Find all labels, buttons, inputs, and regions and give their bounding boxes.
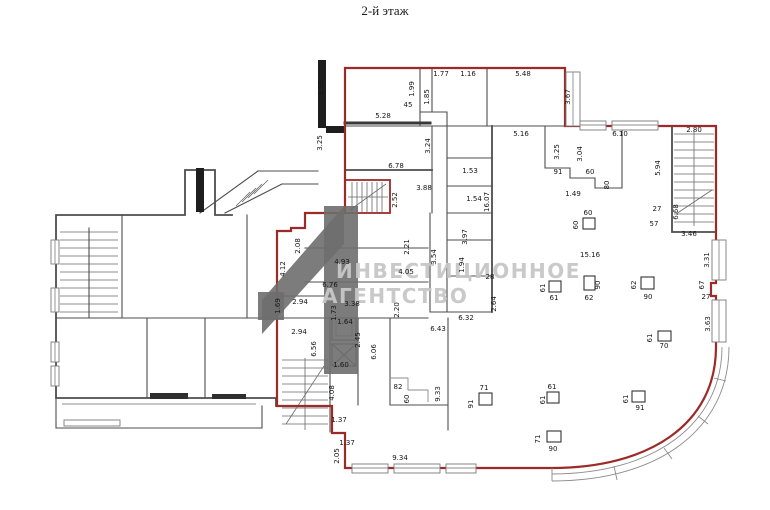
dimension-label: 82 xyxy=(394,383,403,391)
dimension-label: 3.04 xyxy=(576,146,584,162)
dimension-label: 4.08 xyxy=(328,385,336,401)
dimension-label: 90 xyxy=(644,293,653,301)
column xyxy=(641,277,654,289)
dimension-label: 90 xyxy=(594,281,602,290)
dimension-label: 91 xyxy=(467,400,475,409)
dimension-label: 4.93 xyxy=(334,258,350,266)
dimension-label: 5.94 xyxy=(654,160,662,176)
dimension-label: 27 xyxy=(702,293,711,301)
dimension-label: 57 xyxy=(650,220,659,228)
dimension-label: 1.53 xyxy=(462,167,478,175)
dimension-label: 1.64 xyxy=(337,318,353,326)
dimension-label: 2.64 xyxy=(490,296,498,312)
dimension-label: 2.94 xyxy=(292,298,308,306)
dimension-label: 6.10 xyxy=(612,130,628,138)
dimension-label: 3.25 xyxy=(553,144,561,160)
dimension-label: 1.99 xyxy=(408,81,416,97)
bottom-left-staircase xyxy=(282,358,328,430)
dimension-label: 91 xyxy=(636,404,645,412)
dimension-label: 6.43 xyxy=(430,325,446,333)
dimension-label: 62 xyxy=(585,294,594,302)
west-windows xyxy=(51,240,59,386)
dimension-label: 3.31 xyxy=(703,252,711,268)
column xyxy=(549,281,561,292)
dimension-label: 3.46 xyxy=(681,230,697,238)
left-staircase xyxy=(56,228,122,318)
dimension-label: 6.06 xyxy=(370,344,378,360)
dimension-label: 2.08 xyxy=(294,238,302,254)
column xyxy=(479,393,492,405)
dimension-label: 2.20 xyxy=(393,302,401,318)
column xyxy=(583,218,595,229)
dimension-label: 3.88 xyxy=(416,184,432,192)
dimension-label: 15.16 xyxy=(580,251,601,259)
dimension-label: 61 xyxy=(622,395,630,404)
dimension-label: 71 xyxy=(534,435,542,444)
dimension-label: 60 xyxy=(584,209,593,217)
dimension-label: 67 xyxy=(698,281,706,290)
dimension-label: 2.45 xyxy=(354,332,362,348)
dimension-label: 91 xyxy=(554,168,563,176)
dimension-label: 3.38 xyxy=(344,300,360,308)
dimension-label: 6.76 xyxy=(322,281,338,289)
dimension-label: 1.94 xyxy=(458,257,466,273)
dimension-label: 2.80 xyxy=(686,126,702,134)
dimension-label: 71 xyxy=(480,384,489,392)
floor-plan-page: 2-й этаж xyxy=(0,0,770,510)
floor-plan-canvas: ИНВЕСТИЦИОННОЕ АГЕНТСТВО 3.361.991.851.7… xyxy=(0,0,770,510)
dimension-label: 1.37 xyxy=(339,439,355,447)
dimension-label: 61 xyxy=(539,284,547,293)
dimension-label: 5.48 xyxy=(515,70,531,78)
dimension-label: 1.60 xyxy=(333,361,349,369)
dimension-label: 60 xyxy=(586,168,595,176)
column xyxy=(547,431,561,442)
dimension-label: 3.36 xyxy=(317,80,325,96)
dimension-label: 61 xyxy=(548,383,557,391)
dimension-label: 4.05 xyxy=(398,268,414,276)
dimension-label: 6.78 xyxy=(388,162,404,170)
dimension-label: 61 xyxy=(646,334,654,343)
dimension-label: 62 xyxy=(630,281,638,290)
column xyxy=(632,391,645,402)
right-staircase xyxy=(674,130,714,226)
dimension-label: 1.69 xyxy=(274,298,282,314)
dimension-label: 27 xyxy=(653,205,662,213)
column xyxy=(658,331,671,341)
annex-window xyxy=(64,420,120,426)
dimension-label: 2.52 xyxy=(391,192,399,208)
dimension-label: 61 xyxy=(550,294,559,302)
dimension-label: 61 xyxy=(539,396,547,405)
dimension-label: 2.94 xyxy=(291,328,307,336)
dimension-label: 2.05 xyxy=(333,448,341,464)
window-sill xyxy=(150,393,188,399)
dimension-label: 45 xyxy=(404,101,413,109)
dimension-label: 90 xyxy=(549,445,558,453)
dimension-label: 1.77 xyxy=(433,70,449,78)
dimension-label: 1.54 xyxy=(466,195,482,203)
dimension-label: 28 xyxy=(486,273,495,281)
dimension-label: 70 xyxy=(660,342,669,350)
dimension-label: 3.24 xyxy=(424,138,432,154)
dimension-label: 9.33 xyxy=(434,386,442,402)
dimension-label: 1.16 xyxy=(460,70,476,78)
dimension-label: 60 xyxy=(572,221,580,230)
dimension-label: 3.67 xyxy=(564,89,572,105)
column xyxy=(547,392,559,403)
dimension-label: 6.32 xyxy=(458,314,474,322)
dimension-label: 3.63 xyxy=(704,316,712,332)
dimension-label: 1.37 xyxy=(331,416,347,424)
watermark: ИНВЕСТИЦИОННОЕ АГЕНТСТВО xyxy=(258,206,581,374)
dimension-label: 2.21 xyxy=(403,239,411,255)
window-sill xyxy=(212,394,246,399)
dimension-label: 1.85 xyxy=(423,89,431,105)
dimension-label: 5.28 xyxy=(375,112,391,120)
dimension-label: 4.12 xyxy=(279,261,287,277)
dimension-label: 9.34 xyxy=(392,454,408,462)
dimension-label: 3.25 xyxy=(316,135,324,151)
dimension-label: 6.56 xyxy=(310,341,318,357)
dimension-label: 3.97 xyxy=(461,229,469,245)
dimension-label: 16.07 xyxy=(483,192,491,212)
dimension-label: 1.49 xyxy=(565,190,581,198)
dimension-label: 80 xyxy=(603,181,611,190)
dimension-label: 3.54 xyxy=(430,249,438,265)
dimension-label: 5.16 xyxy=(513,130,529,138)
dimension-label: 60 xyxy=(403,395,411,404)
dimension-label: 6.68 xyxy=(672,204,680,220)
